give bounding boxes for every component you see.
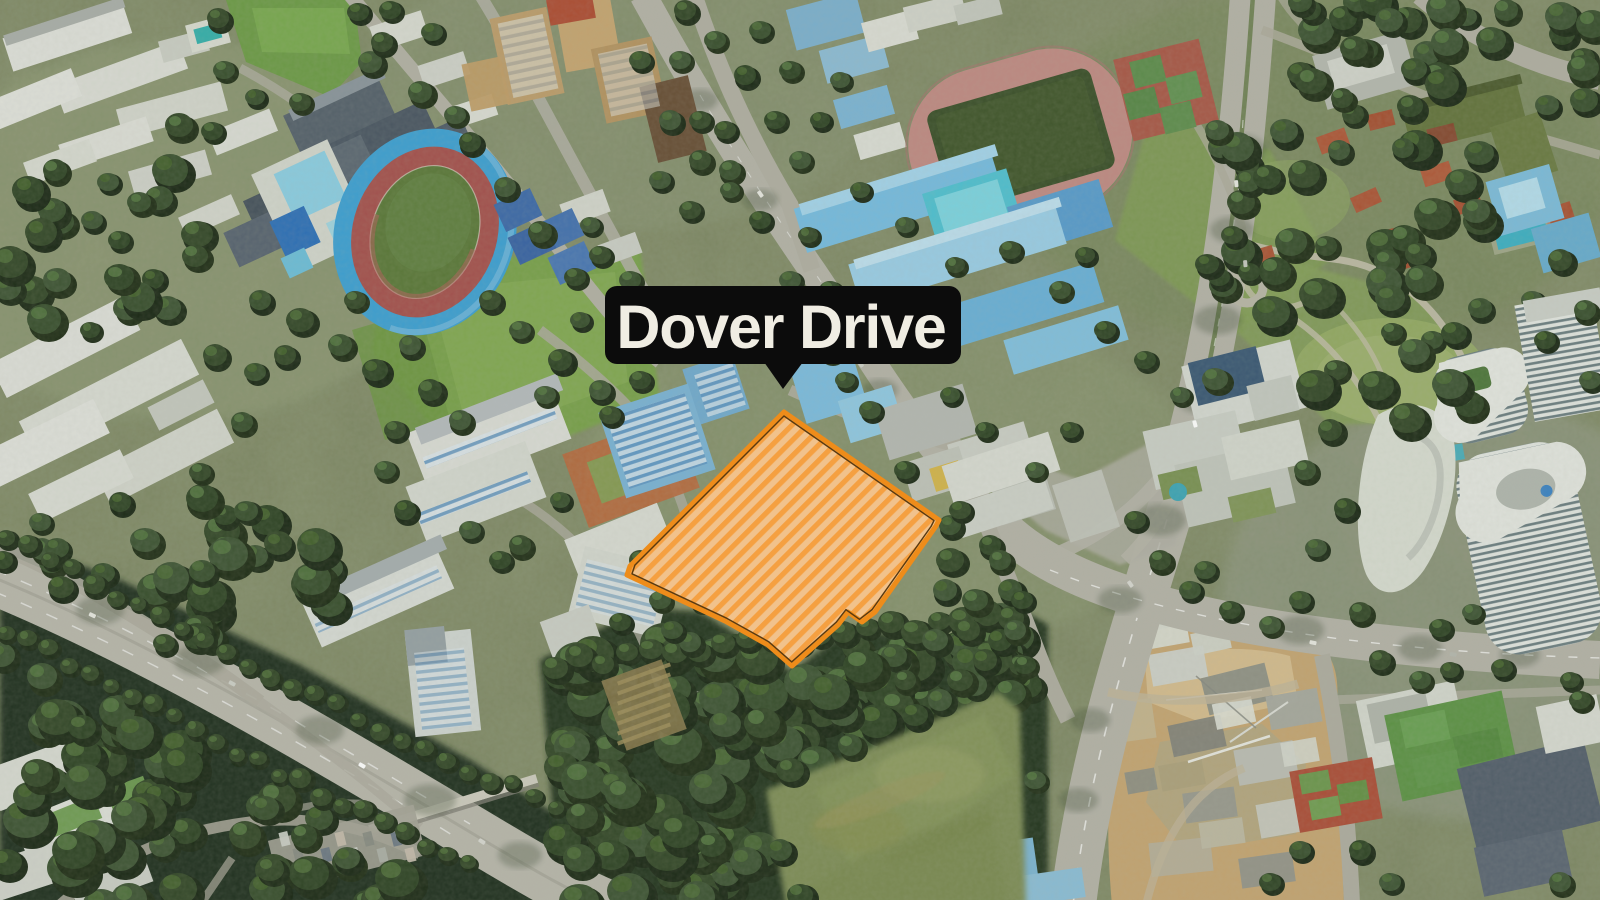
svg-text:Dover Drive: Dover Drive <box>616 293 945 361</box>
